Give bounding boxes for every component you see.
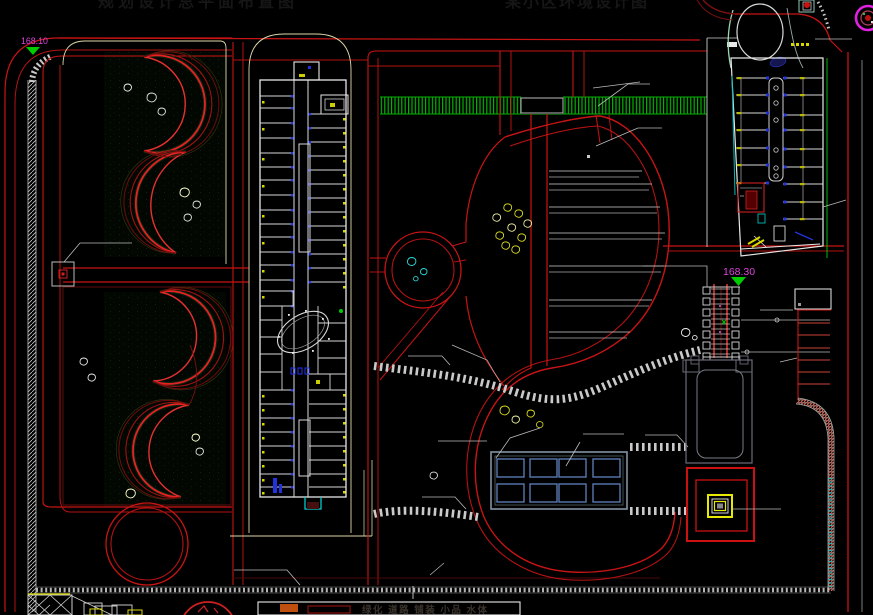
svg-text:规划设计总平面布置图: 规划设计总平面布置图 — [98, 0, 298, 11]
svg-text:绿化 道路 铺装 小品 水体: 绿化 道路 铺装 小品 水体 — [362, 604, 489, 615]
svg-text:168.10: 168.10 — [21, 36, 48, 46]
svg-text:某小区环境设计图: 某小区环境设计图 — [504, 0, 649, 11]
svg-text:168.30: 168.30 — [723, 266, 755, 278]
